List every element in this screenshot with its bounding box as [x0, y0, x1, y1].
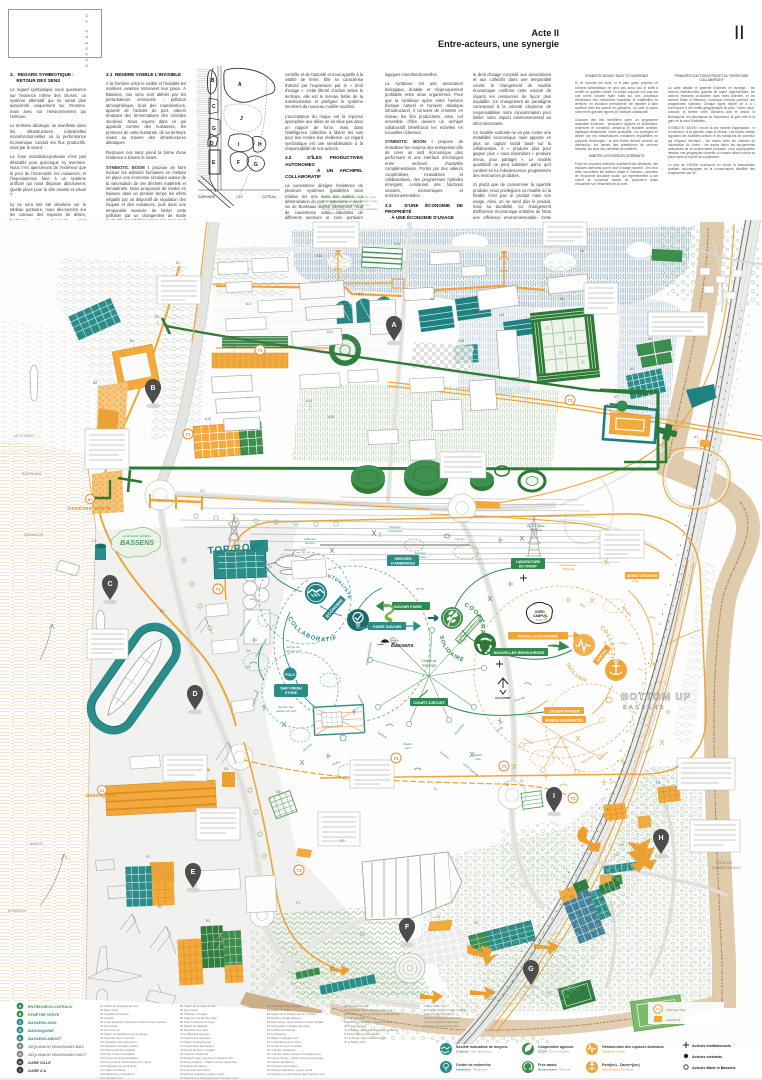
svg-text:BARANQUINE: BARANQUINE	[86, 793, 117, 798]
svg-text:G4 Maison des Marins: G4 Maison des Marins	[267, 1060, 295, 1064]
svg-text:D'AMBIANCES: D'AMBIANCES	[391, 562, 416, 566]
svg-text:T1: T1	[656, 1008, 660, 1012]
svg-text:FENÊTRE VERTE: FENÊTRE VERTE	[68, 504, 112, 511]
svg-text:Pont(on) - Darse+(jeu): Pont(on) - Darse+(jeu)	[602, 1063, 640, 1067]
svg-text:GARE DE: GARE DE	[716, 861, 733, 865]
svg-text:Coopérative agricole: Coopérative agricole	[538, 1045, 574, 1049]
svg-text:D: D	[19, 1027, 22, 1032]
svg-text:LGV: LGV	[236, 195, 244, 199]
svg-text:I: I	[553, 793, 555, 800]
svg-text:B6 Bassin de baignade: B6 Bassin de baignade	[180, 1024, 208, 1028]
svg-text:G1 Chantier collaboratif: G1 Chantier collaboratif	[267, 1048, 295, 1052]
svg-text:A2 Data center: A2 Data center	[100, 1008, 118, 1012]
svg-text:A12: A12	[327, 330, 333, 334]
svg-text:GARE Z.A: GARE Z.A	[28, 1069, 46, 1073]
svg-text:Free waste: Free waste	[538, 1063, 557, 1067]
svg-text:D4: D4	[224, 767, 228, 771]
svg-text:recyclage: recyclage	[422, 664, 437, 668]
svg-text:B5 Piscine flottante du fleuve: B5 Piscine flottante du fleuve	[180, 1020, 215, 1024]
svg-text:C1 La Bassens-Georges: C1 La Bassens-Georges	[180, 1032, 210, 1036]
svg-text:Gestionnaire des espaces dorma: Gestionnaire des espaces dormants	[602, 1045, 664, 1049]
svg-text:A12 Silos à blé libre-cueillet: A12 Silos à blé libre-cueillette	[100, 1048, 136, 1052]
svg-text:S Périmètre Zone fonction créa: S Périmètre Zone fonction création	[424, 1008, 466, 1012]
svg-text:B3: B3	[155, 315, 159, 319]
svg-text:Société mutualiste de moyens: Société mutualiste de moyens	[456, 1045, 508, 1049]
svg-text:H4: H4	[656, 781, 660, 785]
svg-text:ENTRE-DEUX-COTEAUX: ENTRE-DEUX-COTEAUX	[28, 1005, 73, 1009]
svg-text:LE COSSEAU: LE COSSEAU	[14, 434, 35, 438]
svg-text:B7 Belvédère des vents: B7 Belvédère des vents	[180, 1028, 209, 1032]
svg-text:B3 Chantiers nomades: B3 Chantiers nomades	[180, 1012, 208, 1016]
svg-text:mutualisés: mutualisés	[388, 529, 402, 533]
svg-text:E3 Station de serrialage afin: E3 Station de serrialage afin de l'Occan…	[267, 1012, 317, 1016]
svg-text:AGENT D'USAGER: AGENT D'USAGER	[627, 574, 658, 578]
svg-text:Arrêt Tram-Train: Arrêt Tram-Train	[666, 1008, 686, 1012]
svg-text:A11 Brasserie viticulture urba: A11 Brasserie viticulture urbaine	[100, 1044, 139, 1048]
svg-text:T1: T1	[393, 756, 399, 761]
svg-text:B1 Station de pontage de l'îlo: B1 Station de pontage de l'îlot	[180, 1004, 216, 1008]
svg-text:A4 L'étable: A4 L'étable	[100, 1016, 114, 1020]
svg-text:A1: A1	[694, 435, 698, 439]
svg-text:H3: H3	[614, 853, 618, 857]
svg-text:B: B	[19, 1011, 22, 1016]
svg-text:Institution / Mécanique: Institution / Mécanique	[456, 1068, 488, 1072]
svg-text:A13 Parc nicheurs inondable: A13 Parc nicheurs inondable	[100, 1052, 135, 1056]
svg-text:Bassens: Bassens	[391, 643, 414, 649]
svg-text:MARINE AUGMENTÉE: MARINE AUGMENTÉE	[545, 717, 584, 722]
svg-text:GARONNE: GARONNE	[198, 195, 216, 199]
svg-text:G1: G1	[360, 933, 365, 937]
svg-text:FAIRE SAVOIR: FAIRE SAVOIR	[373, 624, 401, 629]
svg-text:DU VIVANT: DU VIVANT	[519, 565, 538, 569]
svg-text:H2: H2	[620, 843, 624, 847]
svg-text:I1 La Station, pépinières rest: I1 La Station, pépinières restaurant-aub…	[344, 1028, 399, 1032]
svg-text:D3 Darse insulaire + Station s: D3 Darse insulaire + Station service aug…	[180, 1060, 237, 1064]
svg-text:vélo: vélo	[475, 757, 481, 761]
svg-text:I: I	[238, 142, 240, 148]
svg-text:BASSENS AVAL: BASSENS AVAL	[28, 1021, 58, 1025]
svg-text:D6: D6	[276, 790, 280, 794]
svg-text:Centre de: Centre de	[422, 659, 437, 663]
svg-text:H1: H1	[570, 895, 574, 899]
svg-text:A: A	[19, 1003, 22, 1008]
svg-text:Centre de recherche: Centre de recherche	[456, 1063, 491, 1067]
svg-text:E1: E1	[146, 855, 150, 859]
svg-text:ICI LE PORT: ICI LE PORT	[495, 696, 511, 700]
svg-text:F3 Maison hydrogène vert: F3 Maison hydrogène vert	[267, 1036, 298, 1040]
svg-text:I3 L'échange, logements-éconau: I3 L'échange, logements-éconautes	[344, 1036, 387, 1040]
svg-text:A: A	[391, 322, 396, 329]
svg-text:Ressourcerie / Recycle: Ressourcerie / Recycle	[538, 1068, 571, 1072]
svg-text:dockers: dockers	[305, 541, 315, 545]
svg-text:E3: E3	[206, 919, 210, 923]
svg-text:T1: T1	[501, 764, 507, 769]
svg-text:BRATISLAVA: BRATISLAVA	[22, 472, 41, 476]
svg-text:radoub n°3: radoub n°3	[286, 649, 301, 653]
svg-text:C: C	[212, 104, 216, 110]
svg-text:A3 Chaudière biomasse: A3 Chaudière biomasse	[100, 1012, 129, 1016]
svg-text:H5 Parking mutualisés / espace: H5 Parking mutualisés / espace de soleil	[344, 1020, 393, 1024]
svg-text:Autolib/D.M: Autolib/D.M	[666, 1018, 681, 1022]
svg-text:A16: A16	[230, 344, 236, 348]
svg-text:E5 Bison Rang, tuerie croisée: E5 Bison Rang, tuerie croisée et station…	[267, 1020, 324, 1024]
svg-text:A16 Ralingues de coordinande: A16 Ralingues de coordinande	[100, 1064, 137, 1068]
svg-text:Collectif / Libre disposition: Collectif / Libre disposition	[456, 1050, 492, 1054]
svg-text:H3 Silos-tour réset, gestionna: H3 Silos-tour réset, gestionnaire de dis…	[344, 1012, 400, 1016]
svg-text:Association/ Servitude: Association/ Servitude	[602, 1068, 634, 1072]
svg-text:H6 Centre agricole: H6 Centre agricole	[344, 1024, 367, 1028]
svg-text:C3: C3	[92, 539, 96, 543]
svg-text:I1: I1	[434, 787, 437, 791]
svg-text:G3 Centre incubé + Station ser: G3 Centre incubé + Station service augme…	[267, 1056, 323, 1060]
svg-text:A7 Ferme du sel: A7 Ferme du sel	[100, 1028, 120, 1032]
svg-text:G5 Grainerie naval docks: G5 Grainerie naval docks	[267, 1064, 298, 1068]
svg-text:MARADOUM: MARADOUM	[24, 533, 43, 537]
svg-text:C3 Station hydrogène vert: C3 Station hydrogène vert	[180, 1040, 211, 1044]
svg-text:C4 Coopérative des dockers: C4 Coopérative des dockers	[180, 1044, 215, 1048]
svg-text:E2: E2	[158, 905, 162, 909]
svg-text:A15: A15	[316, 254, 322, 258]
svg-text:C2 Ateliers des capitaines: C2 Ateliers des capitaines	[180, 1036, 212, 1040]
svg-text:GARE VILLE: GARE VILLE	[28, 1061, 51, 1065]
svg-text:E2 Ecole formatrice: E2 Ecole formatrice	[267, 1008, 291, 1012]
svg-text:C2: C2	[200, 489, 204, 493]
svg-text:D4 Maison des Marins: D4 Maison des Marins	[180, 1064, 207, 1068]
svg-text:BASSENS AMONT: BASSENS AMONT	[28, 1037, 62, 1041]
svg-text:A10: A10	[394, 242, 400, 246]
svg-text:D: D	[192, 691, 197, 698]
svg-text:B1: B1	[87, 497, 93, 502]
svg-text:A3: A3	[630, 367, 634, 371]
svg-text:NOUVELLES RESSOURCES: NOUVELLES RESSOURCES	[494, 651, 545, 655]
svg-text:T1: T1	[257, 348, 263, 353]
svg-text:A4: A4	[648, 337, 652, 341]
svg-text:S Zones d'emprises des silos: S Zones d'emprises des silos	[424, 1024, 460, 1028]
svg-text:B1: B1	[176, 261, 180, 265]
svg-text:H4 Parc populaire: H4 Parc populaire	[344, 1016, 366, 1020]
svg-text:B4 Halle gourmande des quais: B4 Halle gourmande des quais	[180, 1016, 217, 1020]
svg-text:SAVOIR FAIRE: SAVOIR FAIRE	[394, 604, 422, 609]
svg-text:BASSENS: BASSENS	[623, 705, 666, 711]
svg-text:I2: I2	[506, 783, 509, 787]
svg-text:A1 Station de pompage de l'eau: A1 Station de pompage de l'eau	[100, 1004, 139, 1008]
svg-text:A14 Serres de phytoremédiation: A14 Serres de phytoremédiation	[100, 1056, 139, 1060]
svg-text:A11: A11	[358, 292, 364, 296]
svg-text:D2: D2	[160, 609, 164, 613]
svg-text:SEQUINAUD PANORAMIS HAUT: SEQUINAUD PANORAMIS HAUT	[28, 1053, 87, 1057]
svg-text:A18: A18	[458, 339, 464, 343]
svg-text:E1 Phalanstère des énergies: E1 Phalanstère des énergies	[267, 1004, 302, 1008]
svg-text:BARANQUINE: BARANQUINE	[28, 1029, 54, 1033]
svg-text:M.T.B: M.T.B	[416, 587, 424, 591]
svg-text:LABORATOIRE: LABORATOIRE	[516, 560, 541, 564]
svg-text:D: D	[210, 141, 214, 147]
svg-text:D1 Chantier collaboratif: D1 Chantier collaboratif	[180, 1052, 208, 1056]
svg-text:T1: T1	[185, 432, 191, 437]
svg-text:I4: I4	[676, 765, 679, 769]
svg-text:A17 Halte touristande: A17 Halte touristande	[100, 1068, 126, 1072]
svg-text:Acteurs existants: Acteurs existants	[692, 1055, 722, 1059]
svg-text:E: E	[191, 869, 196, 876]
svg-text:H: H	[258, 142, 262, 148]
svg-text:S Zones d'inspection des voies: S Zones d'inspection des voies	[424, 1016, 462, 1020]
svg-text:D6 Parking mutualisé, espace s: D6 Parking mutualisé, espace sportif	[180, 1072, 224, 1076]
svg-text:T1: T1	[570, 796, 576, 801]
svg-text:I2 Station Services Donateurs: I2 Station Services Donateurs	[344, 1032, 380, 1036]
svg-text:B2 Grue canal: B2 Grue canal	[180, 1008, 198, 1012]
svg-text:F2: F2	[436, 915, 440, 919]
svg-text:Station rang: Station rang	[553, 745, 570, 749]
svg-text:F1: F1	[296, 901, 300, 905]
svg-text:COTEAU: COTEAU	[262, 195, 277, 199]
svg-text:B4: B4	[130, 339, 134, 343]
svg-text:CAMBES-BLANC: CAMBES-BLANC	[712, 866, 741, 870]
svg-text:G: G	[254, 162, 258, 168]
svg-text:LAISSER PASSER: LAISSER PASSER	[548, 709, 579, 713]
svg-text:G: G	[18, 1051, 21, 1056]
svg-text:T1: T1	[215, 587, 221, 592]
svg-text:B: B	[150, 385, 155, 392]
svg-text:A2: A2	[606, 403, 610, 407]
svg-text:STORE: STORE	[285, 691, 298, 695]
svg-text:B5: B5	[93, 381, 97, 385]
svg-text:C: C	[107, 581, 112, 588]
svg-text:SERVICES: SERVICES	[394, 557, 412, 561]
svg-text:A6: A6	[580, 249, 584, 253]
svg-text:A7: A7	[614, 395, 618, 399]
svg-text:SHIP FRESH: SHIP FRESH	[280, 687, 302, 691]
svg-text:A5 Lycée agricole et Centre de: A5 Lycée agricole et Centre de recherche…	[100, 1020, 167, 1024]
svg-text:F1 La Bulterole Géorgie: F1 La Bulterole Géorgie	[267, 1028, 296, 1032]
svg-text:E6 Guinguettes et théâtre des: E6 Guinguettes et théâtre des quais	[267, 1024, 311, 1028]
svg-text:E: E	[19, 1035, 22, 1040]
svg-text:P3: P3	[474, 921, 478, 925]
svg-text:E4 Piscine portuaire flottante: E4 Piscine portuaire flottante	[267, 1016, 302, 1020]
svg-text:B: B	[211, 78, 215, 84]
svg-text:A13: A13	[328, 415, 334, 419]
svg-text:Vergers: Vergers	[455, 537, 465, 541]
svg-text:A9: A9	[500, 313, 504, 317]
svg-text:SEQUINAUD PANORAMIS BAS: SEQUINAUD PANORAMIS BAS	[28, 1045, 84, 1049]
svg-text:F5 Terrain de sport mutualisé: F5 Terrain de sport mutualisé	[267, 1044, 302, 1048]
svg-text:J: J	[240, 116, 243, 122]
svg-text:G: G	[212, 126, 216, 132]
svg-text:G: G	[528, 966, 534, 973]
svg-text:F: F	[405, 924, 410, 931]
svg-text:C4: C4	[246, 649, 250, 653]
svg-text:A19: A19	[205, 417, 211, 421]
svg-text:Syndicat / Action: Syndicat / Action	[602, 1050, 626, 1054]
svg-text:métiers du port: métiers du port	[276, 709, 296, 713]
svg-text:NOUVELLE ÉCONOMIE: NOUVELLE ÉCONOMIE	[518, 634, 559, 639]
svg-text:T1: T1	[296, 868, 302, 873]
svg-text:F2 Anythracène: F2 Anythracène	[267, 1032, 286, 1036]
svg-text:H2 Jardinage d'écol, paysage a: H2 Jardinage d'écol, paysage augmenté	[344, 1008, 393, 1012]
svg-text:portuaires: portuaires	[413, 555, 427, 559]
svg-text:H: H	[19, 1059, 22, 1064]
svg-text:A18 Madelin de pontandeurs: A18 Madelin de pontandeurs	[100, 1072, 135, 1076]
svg-text:G6 Parking mutualisés, espace: G6 Parking mutualisés, espace sportif	[267, 1068, 313, 1072]
svg-text:H: H	[658, 835, 663, 842]
svg-text:AMELIN: AMELIN	[29, 842, 43, 846]
svg-text:D7: D7	[340, 839, 344, 843]
svg-text:S Piscine paysage d'étés: S Piscine paysage d'étés	[424, 1012, 455, 1016]
svg-text:A15 Promontoire d'observation: A15 Promontoire d'observation des marais	[100, 1060, 151, 1064]
svg-text:bassens: bassens	[536, 620, 543, 622]
svg-text:S Gare Tram-Train: S Gare Tram-Train	[424, 1004, 447, 1008]
svg-text:Acteurs institutionnels: Acteurs institutionnels	[692, 1044, 731, 1048]
svg-text:F4 Coopérativel Union licime: F4 Coopérativel Union licime	[267, 1040, 302, 1044]
svg-text:A14: A14	[306, 399, 312, 403]
svg-text:G7 Pépinière et observatoire d: G7 Pépinière et observatoire des Chantie…	[267, 1072, 325, 1076]
svg-text:D2 Radoub naval, mécano à hydr: D2 Radoub naval, mécano à hydrogène vert	[180, 1056, 233, 1060]
svg-text:G4: G4	[546, 991, 551, 995]
svg-text:C: C	[19, 1019, 22, 1024]
svg-text:S Liaison Mascaret Bordeaux: S Liaison Mascaret Bordeaux	[424, 1020, 460, 1024]
svg-text:F: F	[237, 160, 240, 166]
svg-text:COURT-CIRCUIT: COURT-CIRCUIT	[413, 700, 445, 705]
svg-text:A8: A8	[430, 297, 434, 301]
svg-text:A9 Hôtel des terres mouvant: A9 Hôtel des terres mouvant	[100, 1036, 134, 1040]
svg-text:A10 Orangerie des saisonniers: A10 Orangerie des saisonniers	[100, 1040, 138, 1044]
svg-text:C5: C5	[246, 665, 250, 669]
svg-text:I: I	[19, 1067, 20, 1072]
svg-text:Acteurs Made in Bassens: Acteurs Made in Bassens	[692, 1066, 736, 1070]
svg-text:E: E	[212, 160, 216, 166]
svg-text:24/7: 24/7	[404, 746, 411, 750]
svg-text:T1: T1	[567, 398, 573, 403]
svg-text:A5: A5	[560, 297, 564, 301]
svg-text:I3: I3	[520, 779, 523, 783]
svg-text:FENÊTRE VERTE: FENÊTRE VERTE	[28, 1012, 60, 1017]
svg-text:A8 Station de dépollution par: A8 Station de dépollution par les algues	[100, 1032, 148, 1036]
svg-text:POLO: POLO	[285, 673, 295, 677]
svg-text:H1 Coteaux des îles: H1 Coteaux des îles	[344, 1004, 369, 1008]
svg-text:SCOP / Terres cultivées: SCOP / Terres cultivées	[538, 1050, 570, 1054]
svg-text:G.T: G.T	[547, 683, 552, 687]
svg-text:A6 Pisciculture: A6 Pisciculture	[100, 1024, 118, 1028]
svg-text:C5 Terrain de sport mutualisé: C5 Terrain de sport mutualisé	[180, 1048, 216, 1052]
svg-text:G3: G3	[488, 997, 493, 1001]
svg-text:BORDEAUX: BORDEAUX	[8, 909, 27, 913]
svg-text:I4 La Station Vélo: I4 La Station Vélo	[344, 1040, 366, 1044]
svg-text:A: A	[238, 82, 242, 88]
svg-text:G2 Chantier naval, mécano à hy: G2 Chantier naval, mécano à hydrogène ve…	[267, 1052, 321, 1056]
svg-text:BASSENS: BASSENS	[120, 540, 154, 547]
svg-text:A17: A17	[246, 302, 252, 306]
svg-text:G2: G2	[330, 965, 335, 969]
svg-text:/ Bergerie: / Bergerie	[561, 567, 575, 571]
svg-text:D5 Grainerie naval docks: D5 Grainerie naval docks	[180, 1068, 211, 1072]
svg-text:Ville de: Ville de	[391, 640, 399, 643]
